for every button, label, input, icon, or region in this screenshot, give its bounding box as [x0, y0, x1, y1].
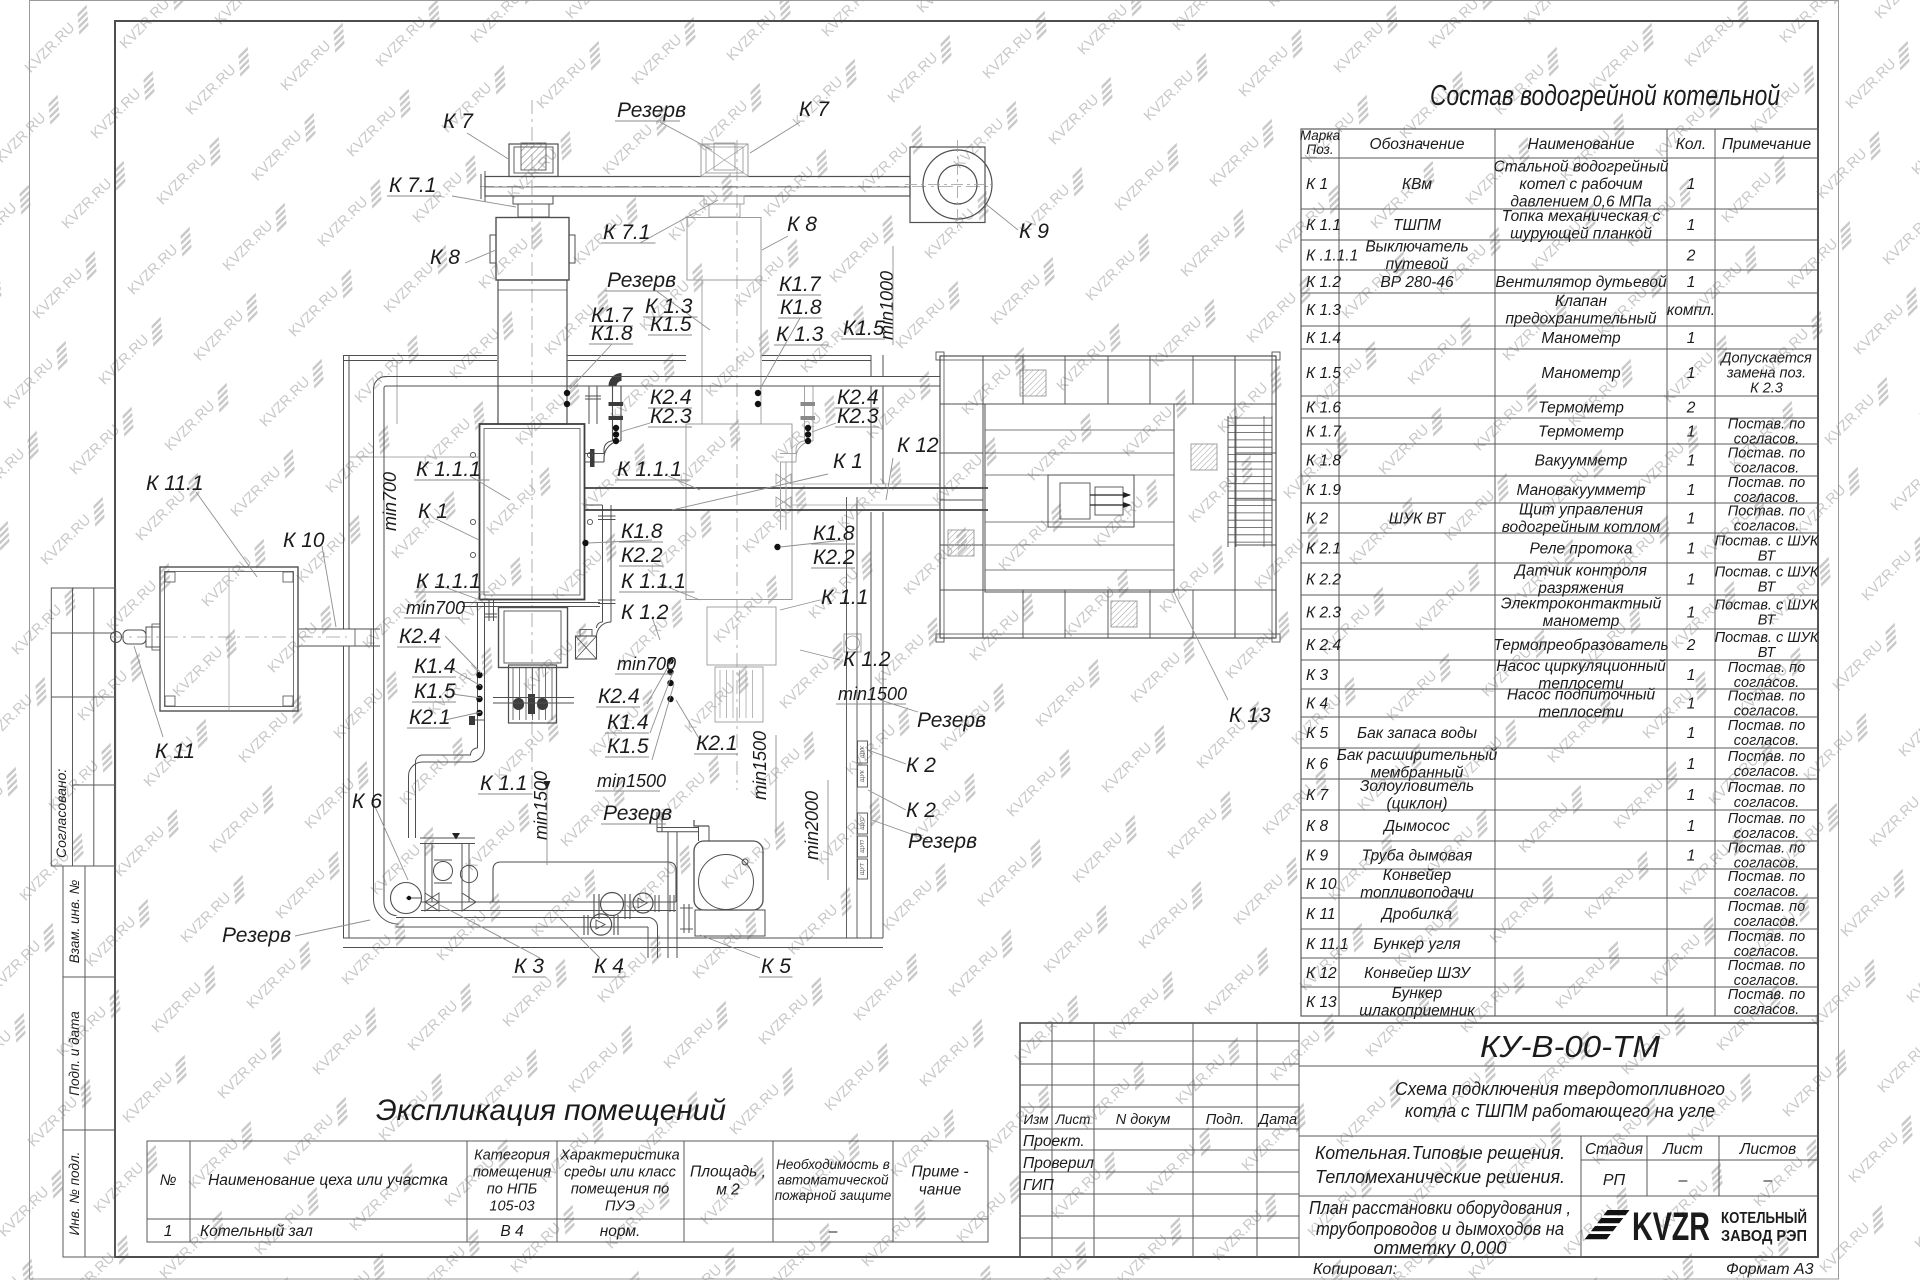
svg-text:1: 1: [1687, 217, 1696, 234]
svg-text:Изм: Изм: [1023, 1112, 1048, 1127]
svg-text:К 1.5: К 1.5: [1306, 365, 1341, 382]
svg-text:Постав. по: Постав. по: [1728, 841, 1805, 857]
svg-text:К 1: К 1: [833, 450, 863, 473]
svg-text:согласов.: согласов.: [1734, 795, 1799, 811]
svg-text:Постав. по: Постав. по: [1728, 660, 1805, 676]
svg-text:К 8: К 8: [1306, 818, 1328, 835]
svg-text:К1.8: К1.8: [621, 520, 663, 543]
svg-text:К 11.1: К 11.1: [146, 472, 204, 495]
svg-text:К 1.1: К 1.1: [1306, 217, 1341, 234]
svg-text:Постав. по: Постав. по: [1728, 446, 1805, 462]
svg-text:К 2.3: К 2.3: [1750, 381, 1783, 397]
svg-text:ГИП: ГИП: [1023, 1177, 1055, 1194]
svg-text:Инв. № подл.: Инв. № подл.: [67, 1152, 82, 1236]
svg-text:ЩУТ: ЩУТ: [860, 862, 866, 875]
svg-text:К 5: К 5: [1306, 725, 1328, 742]
svg-text:К 8: К 8: [430, 246, 460, 269]
svg-text:1: 1: [1687, 176, 1696, 193]
svg-text:Копировал:: Копировал:: [1313, 1261, 1397, 1278]
svg-text:1: 1: [1687, 571, 1696, 588]
svg-text:Подп. и дата: Подп. и дата: [67, 1011, 82, 1096]
svg-text:К 7: К 7: [443, 110, 474, 133]
svg-text:1: 1: [1687, 423, 1696, 440]
svg-text:1: 1: [1687, 482, 1696, 499]
svg-text:КОТЕЛЬНЫЙ: КОТЕЛЬНЫЙ: [1721, 1209, 1807, 1227]
svg-text:Характеристика: Характеристика: [559, 1148, 679, 1164]
svg-text:К2.1: К2.1: [696, 732, 738, 755]
svg-text:К 1: К 1: [418, 500, 448, 523]
svg-text:К 2.3: К 2.3: [1306, 605, 1341, 622]
svg-text:1: 1: [1687, 756, 1696, 773]
svg-text:Постав. с ШУК: Постав. с ШУК: [1715, 534, 1820, 550]
svg-text:Постав. по: Постав. по: [1728, 749, 1805, 765]
svg-text:Термометр: Термометр: [1538, 423, 1624, 440]
svg-text:К 1.3: К 1.3: [1306, 302, 1341, 319]
svg-text:К 10: К 10: [283, 529, 325, 552]
svg-text:min2000: min2000: [802, 791, 822, 860]
svg-text:ВТ: ВТ: [1758, 613, 1777, 629]
svg-text:Дата: Дата: [1257, 1112, 1297, 1128]
svg-text:min700: min700: [380, 472, 400, 531]
svg-text:К 2.1: К 2.1: [1306, 541, 1341, 558]
svg-text:ЩУК: ЩУК: [860, 769, 866, 782]
svg-text:К2.2: К2.2: [621, 544, 663, 567]
svg-text:Вакуумметр: Вакуумметр: [1535, 452, 1628, 469]
svg-text:Примечание: Примечание: [1722, 136, 1812, 153]
svg-text:Постав. с ШУК: Постав. с ШУК: [1715, 598, 1820, 614]
svg-text:1: 1: [164, 1223, 173, 1240]
svg-text:согласов.: согласов.: [1734, 519, 1799, 535]
svg-text:К 1.1: К 1.1: [821, 586, 868, 609]
svg-text:чание: чание: [919, 1181, 962, 1198]
svg-text:К 2: К 2: [906, 799, 936, 822]
svg-text:1: 1: [1687, 274, 1696, 291]
svg-text:Наименование цеха или участка: Наименование цеха или участка: [208, 1172, 448, 1189]
svg-text:(циклон): (циклон): [1386, 796, 1447, 813]
svg-text:1: 1: [1687, 847, 1696, 864]
svg-text:К1.4: К1.4: [607, 711, 649, 734]
svg-text:Котельный зал: Котельный зал: [200, 1223, 313, 1240]
svg-text:К 1.3: К 1.3: [776, 323, 824, 346]
svg-text:К 3: К 3: [514, 955, 544, 978]
svg-text:согласов.: согласов.: [1734, 884, 1799, 900]
svg-text:1: 1: [1687, 330, 1696, 347]
svg-text:К .1.1.1: К .1.1.1: [1306, 248, 1358, 265]
svg-text:К 7: К 7: [1306, 787, 1329, 804]
svg-text:К1.5: К1.5: [843, 317, 885, 340]
svg-text:2: 2: [1686, 399, 1696, 416]
svg-text:К1.8: К1.8: [813, 522, 855, 545]
svg-text:Бак расширительный: Бак расширительный: [1337, 747, 1498, 764]
svg-text:К 3: К 3: [1306, 667, 1328, 684]
svg-text:Резерв: Резерв: [603, 802, 672, 825]
svg-text:разряжения: разряжения: [1537, 580, 1624, 597]
svg-text:Постав. по: Постав. по: [1728, 689, 1805, 705]
svg-text:К 12: К 12: [897, 434, 939, 457]
svg-text:м 2: м 2: [716, 1181, 740, 1198]
svg-text:К2.4: К2.4: [399, 625, 441, 648]
svg-text:К 2: К 2: [906, 754, 936, 777]
svg-text:План расстановки оборудования: План расстановки оборудования ,: [1309, 1197, 1571, 1218]
svg-text:Кол.: Кол.: [1676, 136, 1706, 153]
svg-text:Бункер угля: Бункер угля: [1373, 936, 1460, 953]
svg-text:1: 1: [1687, 604, 1696, 621]
svg-text:ЗАВОД РЭП: ЗАВОД РЭП: [1721, 1228, 1807, 1245]
svg-text:К 1: К 1: [1306, 176, 1328, 193]
svg-text:К 6: К 6: [352, 790, 382, 813]
svg-text:КВм: КВм: [1402, 176, 1432, 193]
svg-text:К2.2: К2.2: [813, 546, 855, 569]
svg-text:min1500: min1500: [597, 771, 666, 791]
svg-text:К 8: К 8: [787, 213, 817, 236]
svg-text:Подп.: Подп.: [1206, 1112, 1245, 1128]
svg-text:Формат А3: Формат А3: [1726, 1261, 1814, 1278]
svg-text:ВР 280-46: ВР 280-46: [1380, 274, 1454, 291]
svg-text:шлакоприемник: шлакоприемник: [1359, 1003, 1475, 1020]
svg-text:К 1.2: К 1.2: [843, 648, 891, 671]
svg-text:Обозначение: Обозначение: [1370, 136, 1465, 153]
svg-text:Постав. с ШУК: Постав. с ШУК: [1715, 630, 1820, 646]
svg-text:ВТ: ВТ: [1758, 549, 1777, 565]
svg-text:1: 1: [1687, 787, 1696, 804]
svg-text:ЩУС: ЩУС: [860, 817, 866, 830]
svg-text:Наименование: Наименование: [1528, 136, 1635, 153]
svg-text:Насос подпиточный: Насос подпиточный: [1507, 687, 1656, 704]
svg-text:согласов.: согласов.: [1734, 764, 1799, 780]
svg-text:К 6: К 6: [1306, 756, 1328, 773]
svg-text:Постав. по: Постав. по: [1728, 780, 1805, 796]
svg-text:отметку 0,000: отметку 0,000: [1373, 1237, 1507, 1258]
svg-text:по НПБ: по НПБ: [487, 1182, 538, 1198]
svg-text:Постав. по: Постав. по: [1728, 987, 1805, 1003]
svg-text:–: –: [828, 1223, 838, 1240]
svg-text:помещения по: помещения по: [571, 1182, 669, 1198]
svg-text:Взам. инв. №: Взам. инв. №: [67, 879, 82, 963]
svg-text:min700: min700: [617, 654, 676, 674]
svg-text:Конвейер: Конвейер: [1383, 867, 1452, 884]
svg-text:К 5: К 5: [761, 955, 791, 978]
svg-text:Проект.: Проект.: [1023, 1133, 1085, 1150]
svg-text:Бак запаса воды: Бак запаса воды: [1357, 725, 1478, 742]
svg-text:К 1.6: К 1.6: [1306, 400, 1341, 417]
svg-text:предохранительный: предохранительный: [1505, 311, 1656, 328]
svg-text:К 11: К 11: [1306, 906, 1336, 923]
svg-text:Приме -: Приме -: [911, 1163, 968, 1180]
svg-text:К 11.1: К 11.1: [1306, 936, 1348, 953]
svg-text:К 9: К 9: [1019, 220, 1049, 243]
svg-text:К 1.9: К 1.9: [1306, 482, 1341, 499]
svg-text:К 2.2: К 2.2: [1306, 572, 1341, 589]
svg-text:К 12: К 12: [1306, 965, 1337, 982]
svg-text:1: 1: [1687, 510, 1696, 527]
svg-text:Дробилка: Дробилка: [1380, 906, 1453, 923]
svg-text:К 7.1: К 7.1: [389, 174, 436, 197]
svg-text:Резерв: Резерв: [908, 830, 977, 853]
svg-text:РП: РП: [1603, 1172, 1626, 1189]
svg-text:Котельная.Типовые решения.: Котельная.Типовые решения.: [1315, 1142, 1565, 1163]
svg-text:пожарной защите: пожарной защите: [775, 1188, 892, 1203]
svg-text:Золоуловитель: Золоуловитель: [1360, 778, 1474, 795]
svg-text:К 4: К 4: [1306, 696, 1328, 713]
svg-text:К2.3: К2.3: [837, 405, 879, 428]
svg-text:К 2.4: К 2.4: [1306, 637, 1341, 654]
svg-text:1: 1: [1687, 695, 1696, 712]
svg-text:К 1.1.1: К 1.1.1: [617, 458, 682, 481]
svg-text:Листов: Листов: [1739, 1141, 1796, 1158]
svg-text:Дымосос: Дымосос: [1382, 818, 1450, 835]
svg-text:min1500: min1500: [750, 731, 770, 800]
svg-text:К 4: К 4: [594, 955, 624, 978]
svg-text:Постав. по: Постав. по: [1728, 929, 1805, 945]
svg-text:Постав. по: Постав. по: [1728, 718, 1805, 734]
svg-text:Поз.: Поз.: [1306, 142, 1333, 157]
svg-text:Датчик контроля: Датчик контроля: [1513, 563, 1647, 580]
svg-text:Бункер: Бункер: [1392, 985, 1443, 1002]
svg-text:К 1.2: К 1.2: [621, 601, 669, 624]
svg-text:KVZR: KVZR: [1632, 1205, 1710, 1249]
svg-text:топливоподачи: топливоподачи: [1360, 885, 1474, 902]
svg-text:№: №: [160, 1172, 177, 1189]
svg-text:1: 1: [1687, 818, 1696, 835]
svg-text:Щит управления: Щит управления: [1519, 502, 1643, 519]
svg-text:Состав водогрейной котельной: Состав водогрейной котельной: [1430, 80, 1780, 112]
svg-text:Резерв: Резерв: [222, 924, 291, 947]
svg-text:компл.: компл.: [1667, 302, 1715, 319]
svg-text:ЩУП: ЩУП: [860, 840, 866, 853]
svg-text:К 1.7: К 1.7: [1306, 424, 1342, 441]
svg-text:трубопроводов и дымоходов на: трубопроводов и дымоходов на: [1316, 1218, 1564, 1239]
svg-text:К 2: К 2: [1306, 511, 1328, 528]
svg-text:Выключатель: Выключатель: [1365, 239, 1468, 256]
svg-text:К 1.1.1: К 1.1.1: [416, 570, 481, 593]
svg-text:К 11: К 11: [155, 740, 195, 763]
svg-text:Насос циркуляционный: Насос циркуляционный: [1496, 658, 1666, 675]
svg-text:Площадь ,: Площадь ,: [690, 1163, 766, 1180]
svg-text:1: 1: [1687, 667, 1696, 684]
svg-text:Лист: Лист: [1662, 1141, 1703, 1158]
svg-text:К2.4: К2.4: [598, 685, 640, 708]
svg-text:К1.5: К1.5: [607, 735, 649, 758]
svg-text:Термопреобразователь: Термопреобразователь: [1493, 637, 1668, 654]
svg-text:Реле протока: Реле протока: [1529, 540, 1632, 557]
svg-text:К2.1: К2.1: [409, 706, 451, 729]
svg-text:согласов.: согласов.: [1734, 914, 1799, 930]
svg-text:2: 2: [1686, 247, 1696, 264]
svg-text:1: 1: [1687, 365, 1696, 382]
svg-text:Допускается: Допускается: [1719, 351, 1812, 367]
svg-text:среды или класс: среды или класс: [564, 1165, 677, 1181]
svg-text:К1.7: К1.7: [779, 273, 822, 296]
svg-text:теплосети: теплосети: [1538, 704, 1624, 721]
svg-text:автоматической: автоматической: [777, 1173, 888, 1188]
svg-text:К1.4: К1.4: [414, 655, 456, 678]
svg-text:Необходимость в: Необходимость в: [776, 1157, 890, 1172]
svg-text:Постав. по: Постав. по: [1728, 417, 1805, 433]
svg-text:К 13: К 13: [1306, 994, 1337, 1011]
svg-text:Схема подключения твердотоплив: Схема подключения твердотопливного: [1395, 1078, 1725, 1099]
svg-text:путевой: путевой: [1386, 256, 1449, 273]
svg-text:Проверил: Проверил: [1023, 1155, 1094, 1172]
svg-text:манометр: манометр: [1543, 613, 1620, 630]
svg-text:Постав. по: Постав. по: [1728, 869, 1805, 885]
svg-text:котла с ТШПМ работающего на уг: котла с ТШПМ работающего на угле: [1405, 1100, 1715, 1121]
svg-text:Топка механическая с: Топка механическая с: [1502, 208, 1661, 225]
svg-text:Клапан: Клапан: [1555, 293, 1607, 310]
svg-text:Постав. по: Постав. по: [1728, 811, 1805, 827]
svg-text:Постав. по: Постав. по: [1728, 504, 1805, 520]
svg-text:min1500: min1500: [838, 684, 907, 704]
svg-text:В 4: В 4: [500, 1223, 524, 1240]
svg-text:К1.8: К1.8: [591, 322, 633, 345]
svg-text:К 13: К 13: [1229, 704, 1271, 727]
svg-text:–: –: [1763, 1172, 1773, 1189]
svg-text:К 9: К 9: [1306, 848, 1328, 865]
svg-text:105-03: 105-03: [489, 1199, 534, 1215]
svg-text:Стальной водогрейный: Стальной водогрейный: [1494, 159, 1669, 176]
svg-text:Электроконтактный: Электроконтактный: [1501, 596, 1662, 613]
svg-text:КУ-В-00-ТМ: КУ-В-00-ТМ: [1480, 1029, 1660, 1064]
svg-text:Вентилятор дутьевой: Вентилятор дутьевой: [1495, 274, 1667, 291]
svg-text:Постав. с ШУК: Постав. с ШУК: [1715, 565, 1820, 581]
svg-text:помещения: помещения: [473, 1165, 551, 1181]
svg-text:согласов.: согласов.: [1734, 733, 1799, 749]
svg-text:согласов.: согласов.: [1734, 1002, 1799, 1018]
svg-text:ШУК ВТ: ШУК ВТ: [1389, 510, 1447, 527]
svg-text:min700: min700: [406, 598, 465, 618]
svg-text:К1.5: К1.5: [650, 313, 692, 336]
svg-text:Резерв: Резерв: [917, 709, 986, 732]
svg-text:К1.5: К1.5: [414, 680, 456, 703]
svg-text:К 7.1: К 7.1: [603, 221, 650, 244]
svg-text:Резерв: Резерв: [617, 99, 686, 122]
svg-text:ПУЭ: ПУЭ: [605, 1199, 635, 1215]
svg-text:Лист: Лист: [1055, 1112, 1091, 1127]
svg-text:замена поз.: замена поз.: [1726, 366, 1806, 382]
svg-text:К 10: К 10: [1306, 876, 1337, 893]
svg-text:Манометр: Манометр: [1541, 330, 1621, 347]
svg-text:ТШПМ: ТШПМ: [1393, 217, 1441, 234]
svg-text:N докум: N докум: [1116, 1112, 1171, 1128]
svg-text:К 1.1: К 1.1: [480, 772, 527, 795]
svg-text:котел с рабочим: котел с рабочим: [1519, 176, 1643, 193]
svg-text:водогрейным котлом: водогрейным котлом: [1502, 519, 1661, 536]
svg-text:Экспликация помещений: Экспликация помещений: [376, 1094, 726, 1127]
svg-text:Труба дымовая: Труба дымовая: [1362, 847, 1473, 864]
svg-text:Резерв: Резерв: [607, 269, 676, 292]
svg-text:К 1.4: К 1.4: [1306, 330, 1341, 347]
svg-text:К 1.8: К 1.8: [1306, 453, 1341, 470]
svg-text:Постав. по: Постав. по: [1728, 958, 1805, 974]
svg-text:Постав. по: Постав. по: [1728, 899, 1805, 915]
svg-text:Конвейер ШЗУ: Конвейер ШЗУ: [1364, 965, 1472, 982]
svg-text:К 1.1.1: К 1.1.1: [621, 570, 686, 593]
svg-text:Согласовано:: Согласовано:: [53, 769, 69, 858]
svg-text:К 1.1.1: К 1.1.1: [416, 458, 481, 481]
svg-text:Стадия: Стадия: [1585, 1141, 1643, 1158]
svg-text:Тепломеханические решения.: Тепломеханические решения.: [1315, 1166, 1565, 1187]
svg-text:–: –: [1678, 1172, 1688, 1189]
svg-text:ЩУК: ЩУК: [860, 745, 866, 758]
svg-text:Манометр: Манометр: [1541, 365, 1621, 382]
svg-text:1: 1: [1687, 540, 1696, 557]
svg-text:К1.8: К1.8: [780, 296, 822, 319]
svg-text:1: 1: [1687, 452, 1696, 469]
svg-text:К2.3: К2.3: [650, 405, 692, 428]
svg-text:ВТ: ВТ: [1758, 645, 1777, 661]
svg-text:шурующей планкой: шурующей планкой: [1510, 226, 1652, 243]
svg-text:К 1.2: К 1.2: [1306, 274, 1341, 291]
svg-text:Мановакуумметр: Мановакуумметр: [1516, 482, 1645, 499]
svg-text:ВТ: ВТ: [1758, 580, 1777, 596]
svg-text:Марка: Марка: [1300, 128, 1341, 143]
svg-text:Термометр: Термометр: [1538, 399, 1624, 416]
svg-text:К 7: К 7: [799, 98, 830, 121]
svg-text:Категория: Категория: [474, 1148, 550, 1164]
svg-text:2: 2: [1686, 637, 1696, 654]
svg-text:Постав. по: Постав. по: [1728, 475, 1805, 491]
svg-text:норм.: норм.: [600, 1223, 641, 1240]
svg-text:1: 1: [1687, 725, 1696, 742]
